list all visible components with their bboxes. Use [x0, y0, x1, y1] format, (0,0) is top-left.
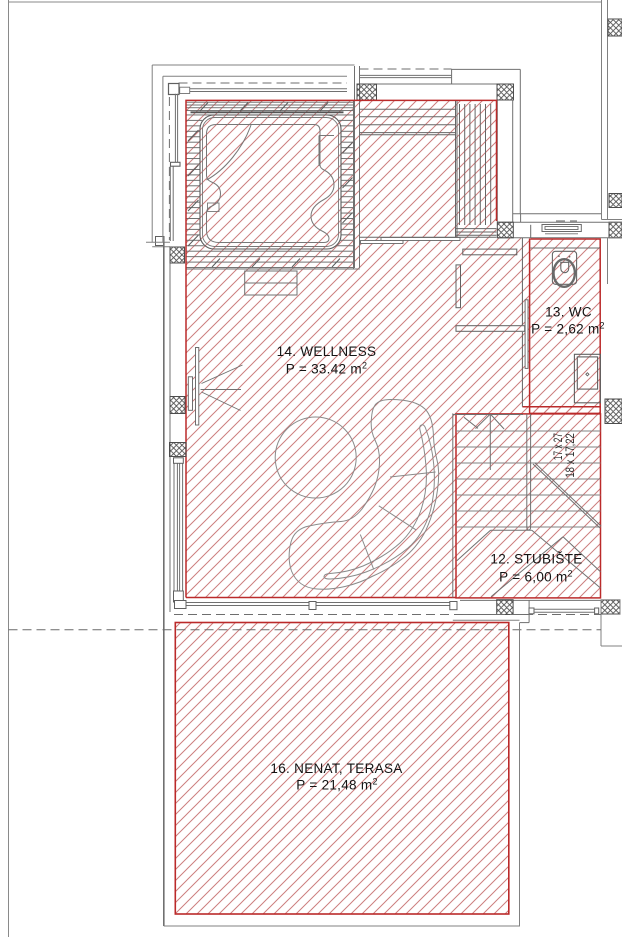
- svg-text:18 x 17,22: 18 x 17,22: [563, 433, 577, 478]
- svg-text:P = 21,48 m2: P = 21,48 m2: [296, 777, 378, 793]
- svg-text:12. STUBIŠTE: 12. STUBIŠTE: [490, 552, 582, 567]
- svg-text:16. NENAT, TERASA: 16. NENAT, TERASA: [270, 761, 402, 776]
- svg-text:P = 6,00 m2: P = 6,00 m2: [499, 569, 573, 585]
- svg-text:13. WC: 13. WC: [545, 305, 592, 320]
- svg-text:P = 33.42 m2: P = 33.42 m2: [286, 361, 368, 377]
- svg-text:P = 2,62 m2: P = 2,62 m2: [531, 321, 605, 337]
- svg-text:14. WELLNESS: 14. WELLNESS: [277, 344, 377, 359]
